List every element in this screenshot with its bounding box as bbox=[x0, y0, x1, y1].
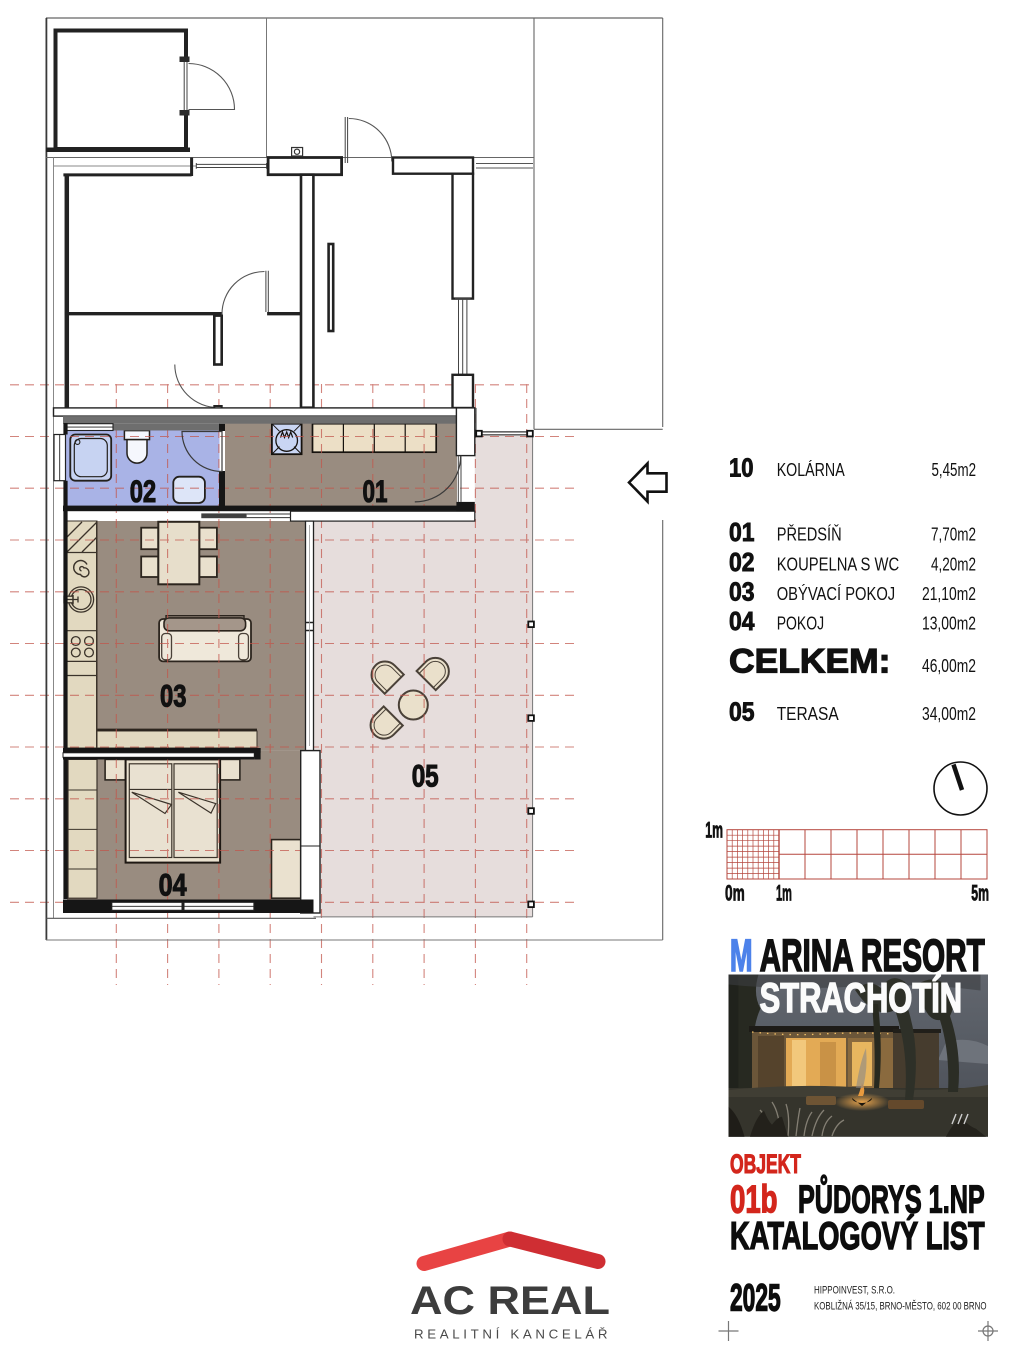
svg-text:KOBLIŽNÁ 35/15, BRNO-MĚSTO, 60: KOBLIŽNÁ 35/15, BRNO-MĚSTO, 602 00 BRNO bbox=[814, 1299, 987, 1312]
svg-text:AC REAL: AC REAL bbox=[410, 1279, 610, 1323]
svg-text:POKOJ: POKOJ bbox=[777, 613, 825, 634]
svg-text:02: 02 bbox=[729, 547, 755, 577]
svg-text:1m: 1m bbox=[776, 881, 792, 906]
svg-text:CELKEM:: CELKEM: bbox=[729, 643, 891, 681]
svg-text:34,00m2: 34,00m2 bbox=[922, 703, 976, 724]
svg-text:46,00m2: 46,00m2 bbox=[922, 655, 976, 676]
svg-text:04: 04 bbox=[729, 606, 755, 636]
svg-text:KATALOGOVÝ LIST: KATALOGOVÝ LIST bbox=[730, 1214, 985, 1258]
svg-text:01: 01 bbox=[729, 517, 755, 547]
svg-text:KOUPELNA S WC: KOUPELNA S WC bbox=[777, 553, 900, 574]
svg-text:0m: 0m bbox=[725, 881, 745, 906]
svg-text:1m: 1m bbox=[705, 818, 723, 843]
svg-text:5,45m2: 5,45m2 bbox=[932, 459, 977, 480]
svg-text:4,20m2: 4,20m2 bbox=[931, 553, 976, 574]
svg-text:02: 02 bbox=[130, 473, 157, 509]
svg-text:2025: 2025 bbox=[730, 1277, 781, 1319]
svg-text:KOLÁRNA: KOLÁRNA bbox=[777, 459, 846, 480]
svg-text:STRACHOTÍN: STRACHOTÍN bbox=[760, 974, 963, 1021]
svg-text:21,10m2: 21,10m2 bbox=[922, 583, 976, 604]
svg-text:OBJEKT: OBJEKT bbox=[730, 1149, 801, 1179]
svg-text:M: M bbox=[730, 930, 753, 981]
svg-text:04: 04 bbox=[159, 867, 187, 903]
svg-text:10: 10 bbox=[729, 452, 754, 482]
svg-text:13,00m2: 13,00m2 bbox=[922, 613, 976, 634]
svg-text:03: 03 bbox=[160, 678, 187, 714]
svg-text:05: 05 bbox=[412, 757, 439, 793]
svg-text:5m: 5m bbox=[971, 881, 989, 906]
svg-text:TERASA: TERASA bbox=[777, 703, 840, 724]
svg-text:OBÝVACÍ POKOJ: OBÝVACÍ POKOJ bbox=[777, 583, 896, 604]
svg-text:REALITNÍ KANCELÁŘ: REALITNÍ KANCELÁŘ bbox=[414, 1326, 608, 1341]
svg-text:05: 05 bbox=[729, 697, 755, 727]
svg-text:PŘEDSÍŇ: PŘEDSÍŇ bbox=[777, 524, 842, 545]
svg-text:HIPPOINVEST, S.R.O.: HIPPOINVEST, S.R.O. bbox=[814, 1284, 895, 1296]
svg-text:7,70m2: 7,70m2 bbox=[931, 524, 976, 545]
svg-text:01: 01 bbox=[363, 473, 388, 509]
svg-text:03: 03 bbox=[729, 576, 755, 606]
